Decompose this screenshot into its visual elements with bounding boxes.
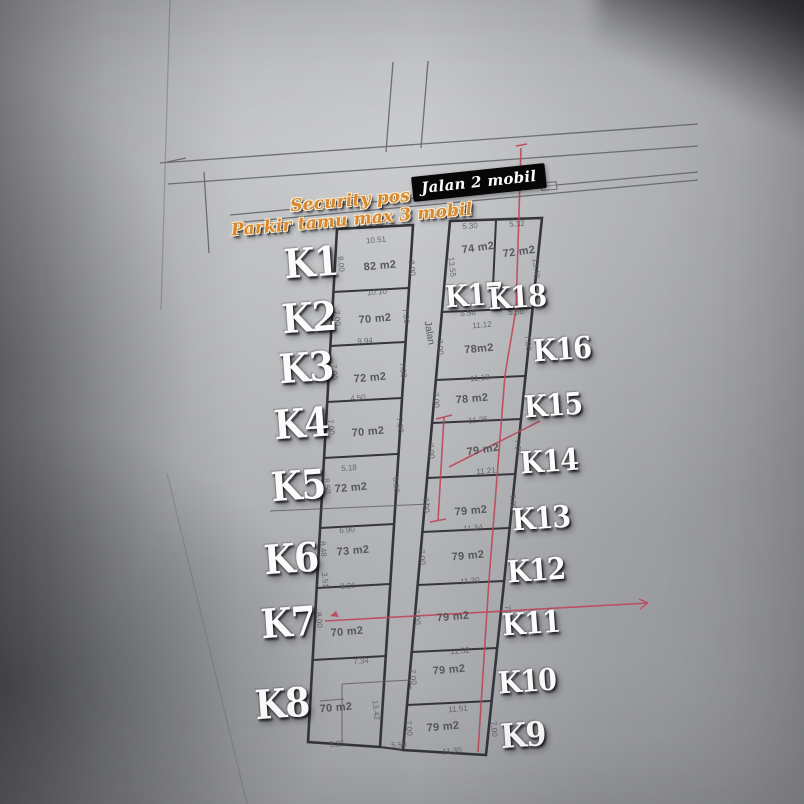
- security-note: Security pos Parkir tamu max 3 mobil: [229, 182, 473, 241]
- plot-label-k10: K10: [497, 663, 557, 702]
- plot-label-k14: K14: [519, 443, 579, 482]
- plot-label-k15: K15: [523, 387, 583, 426]
- plot-label-k3: K3: [277, 343, 334, 394]
- plot-label-k8: K8: [253, 679, 310, 730]
- plot-label-k12: K12: [506, 552, 566, 591]
- plot-label-k9: K9: [499, 715, 547, 757]
- plot-label-k11: K11: [501, 605, 561, 644]
- plot-label-k2: K2: [280, 293, 337, 344]
- plot-label-k4: K4: [272, 399, 329, 450]
- plot-label-k6: K6: [262, 534, 319, 585]
- plot-label-k18: K18: [487, 279, 547, 318]
- plot-label-k1: K1: [282, 238, 339, 289]
- plot-label-k7: K7: [259, 598, 316, 649]
- plot-label-k13: K13: [511, 500, 571, 539]
- plot-label-k16: K16: [532, 331, 592, 370]
- site-plan-photo: Jalan 82 m2 70 m2 72 m2 70 m2 72 m2 73 m…: [0, 0, 804, 804]
- plot-label-k5: K5: [269, 461, 326, 512]
- overlay-graphics: Jalan 2 mobil Security pos Parkir tamu m…: [0, 0, 804, 804]
